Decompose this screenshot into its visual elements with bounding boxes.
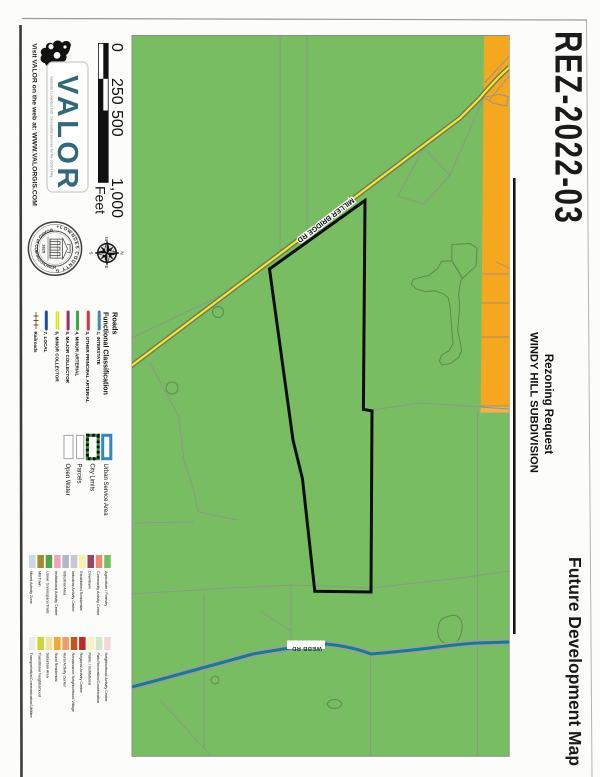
svg-text:Functional Classification: Functional Classification: [102, 312, 109, 395]
svg-text:500: 500: [108, 110, 125, 137]
svg-text:Renaissance Neighborhood Villa: Renaissance Neighborhood Village: [71, 653, 75, 712]
svg-text:Roads: Roads: [111, 312, 120, 335]
svg-text:1, INTERSTATE: 1, INTERSTATE: [96, 332, 101, 365]
svg-text:1825: 1825: [42, 244, 47, 254]
svg-text:Valdosta | Lowndes GIS: Geospa: Valdosta | Lowndes GIS: Geospatial servi…: [50, 76, 54, 177]
svg-text:Rural Activity Center: Rural Activity Center: [62, 653, 66, 688]
svg-text:Mixed Activity Zone: Mixed Activity Zone: [29, 571, 33, 604]
svg-text:4, MINOR ARTERIAL: 4, MINOR ARTERIAL: [74, 332, 79, 377]
svg-text:Industrial Area: Industrial Area: [62, 571, 66, 596]
svg-text:Established Residential: Established Residential: [79, 571, 83, 611]
svg-text:Rural Residential: Rural Residential: [54, 653, 58, 682]
svg-text:3, OTHER PRINCIPAL ARTERIAL: 3, OTHER PRINCIPAL ARTERIAL: [85, 332, 90, 403]
svg-text:Feet: Feet: [93, 186, 109, 214]
svg-text:S: S: [89, 251, 94, 254]
svg-text:1,000: 1,000: [108, 178, 125, 218]
svg-text:N: N: [120, 251, 125, 254]
svg-text:Downtown: Downtown: [88, 571, 92, 589]
svg-text:Parcels: Parcels: [76, 464, 82, 484]
svg-text:Community Activity Center: Community Activity Center: [96, 571, 100, 616]
svg-text:Agriculture / Forestry: Agriculture / Forestry: [104, 571, 108, 606]
svg-text:5, MAJOR COLLECTOR: 5, MAJOR COLLECTOR: [65, 332, 70, 384]
svg-text:Future Development Map: Future Development Map: [565, 557, 585, 766]
svg-text:City Limits: City Limits: [88, 464, 94, 492]
svg-text:0: 0: [108, 43, 125, 52]
svg-text:Railroads: Railroads: [33, 332, 38, 353]
svg-text:Visit VALOR on the web at: WWW: Visit VALOR on the web at: WWW.VALORGIS.…: [31, 43, 38, 206]
svg-text:E: E: [104, 265, 109, 268]
svg-text:Transportation/Communication/U: Transportation/Communication/Utilities: [29, 653, 33, 718]
svg-text:Public / Institutional: Public / Institutional: [88, 653, 92, 686]
svg-text:Mill Town: Mill Town: [37, 571, 41, 587]
svg-text:WINDY HILL SUBDIVISION: WINDY HILL SUBDIVISION: [528, 332, 540, 473]
svg-text:VALOR: VALOR: [51, 75, 83, 192]
svg-text:Industrial Activity Center: Industrial Activity Center: [71, 571, 75, 612]
svg-text:6, MINOR COLLECTOR: 6, MINOR COLLECTOR: [54, 332, 59, 383]
svg-text:Institutional Activity Center: Institutional Activity Center: [54, 571, 58, 616]
svg-text:Transitional Neighborhood: Transitional Neighborhood: [37, 653, 41, 697]
svg-text:Regional Activity Center: Regional Activity Center: [79, 653, 83, 694]
svg-text:7, LOCAL: 7, LOCAL: [43, 332, 48, 353]
svg-text:250: 250: [108, 78, 125, 105]
svg-text:Suburban Area: Suburban Area: [46, 653, 50, 679]
svg-text:Linear Greenspace/Trails: Linear Greenspace/Trails: [46, 571, 50, 614]
svg-text:WEBB RD: WEBB RD: [292, 645, 322, 651]
svg-text:Neighborhood Activity Center: Neighborhood Activity Center: [104, 653, 108, 703]
svg-text:Rezoning Request: Rezoning Request: [542, 354, 554, 454]
svg-text:Urban Service Area: Urban Service Area: [102, 464, 108, 517]
svg-text:Open Water: Open Water: [64, 464, 70, 496]
svg-text:Park/Recreation/Conservation: Park/Recreation/Conservation: [96, 653, 100, 704]
svg-text:REZ-2022-03: REZ-2022-03: [547, 31, 589, 224]
